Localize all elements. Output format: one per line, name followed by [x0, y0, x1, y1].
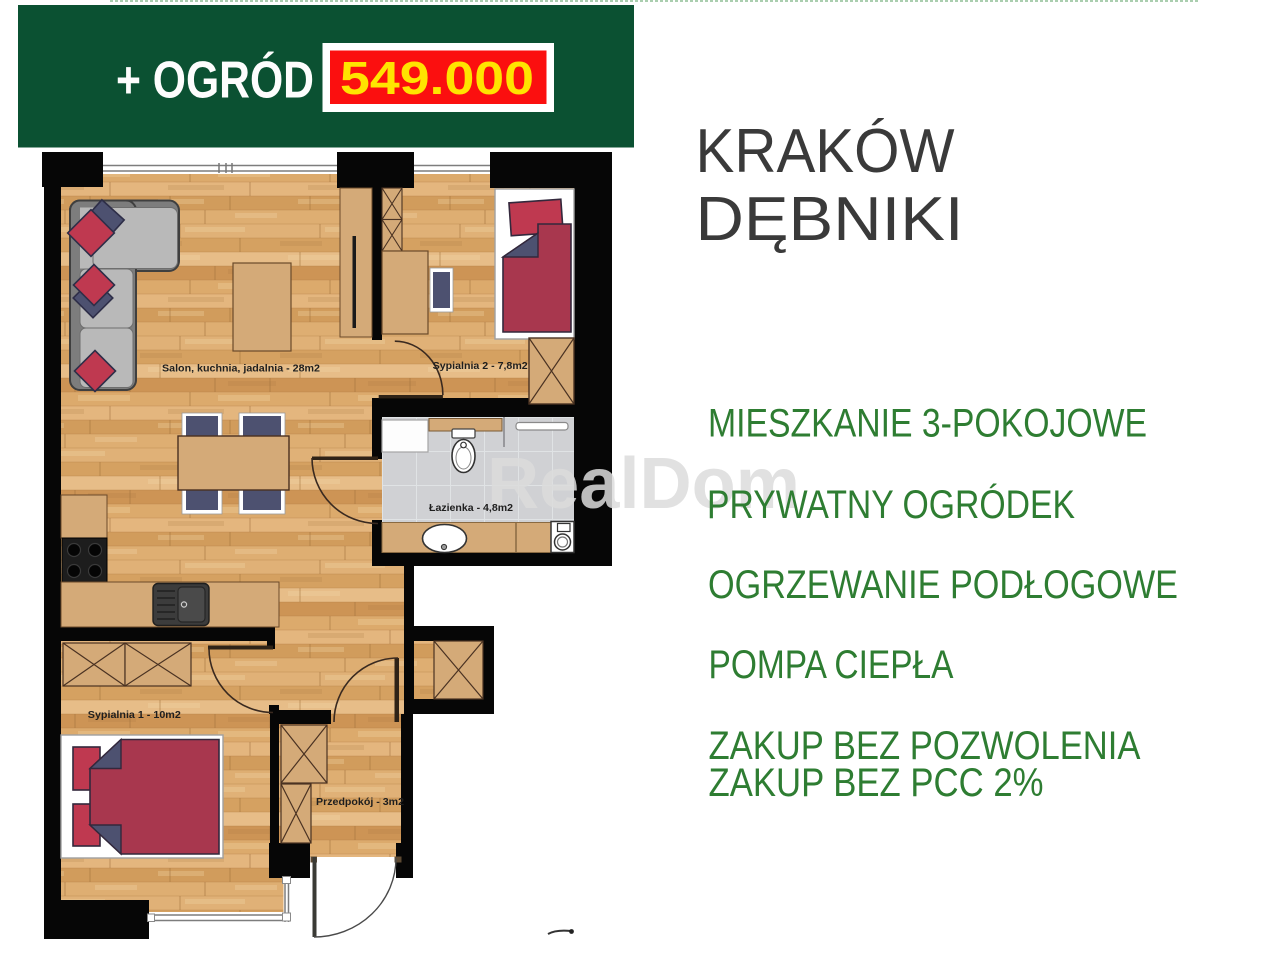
svg-text:Łazienka - 4,8m2: Łazienka - 4,8m2 [429, 502, 513, 514]
svg-text:DĘBNIKI: DĘBNIKI [696, 185, 964, 254]
svg-text:Salon, kuchnia, jadalnia - 28m: Salon, kuchnia, jadalnia - 28m2 [162, 363, 320, 375]
svg-text:ZAKUP BEZ PCC 2%: ZAKUP BEZ PCC 2% [709, 761, 1044, 805]
svg-text:POMPA CIEPŁA: POMPA CIEPŁA [709, 643, 954, 687]
svg-text:OGRZEWANIE PODŁOGOWE: OGRZEWANIE PODŁOGOWE [708, 563, 1178, 607]
svg-text:MIESZKANIE 3-POKOJOWE: MIESZKANIE 3-POKOJOWE [708, 402, 1147, 446]
svg-text:Przedpokój - 3m2: Przedpokój - 3m2 [316, 796, 404, 808]
svg-text:Sypialnia 2 - 7,8m2: Sypialnia 2 - 7,8m2 [433, 360, 528, 372]
svg-text:PRYWATNY OGRÓDEK: PRYWATNY OGRÓDEK [707, 482, 1075, 527]
svg-text:549.000: 549.000 [340, 52, 534, 104]
svg-text:KRAKÓW: KRAKÓW [696, 117, 955, 186]
svg-text:+ OGRÓD: + OGRÓD [116, 52, 314, 110]
svg-text:Sypialnia 1 - 10m2: Sypialnia 1 - 10m2 [88, 709, 181, 721]
